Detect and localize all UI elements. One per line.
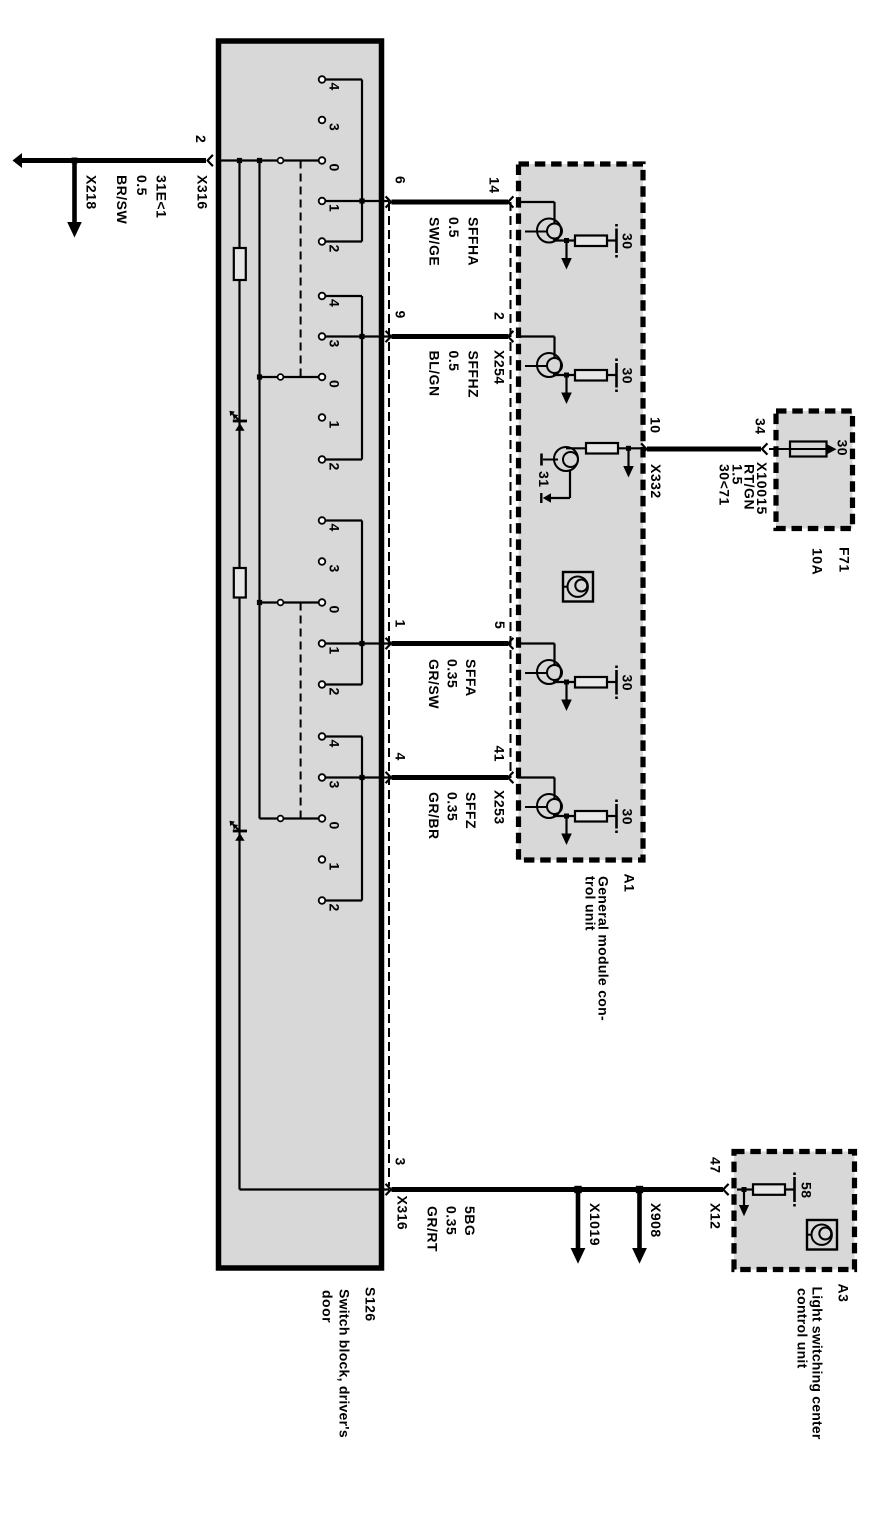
svg-text:BL/GN: BL/GN [427, 351, 443, 397]
svg-text:41: 41 [492, 746, 508, 763]
svg-text:4: 4 [327, 524, 343, 532]
svg-text:30: 30 [620, 675, 636, 692]
svg-text:9: 9 [393, 311, 409, 319]
svg-text:X316: X316 [195, 175, 211, 210]
svg-text:2: 2 [327, 904, 343, 912]
svg-text:2: 2 [327, 245, 343, 253]
svg-text:10A: 10A [810, 548, 826, 575]
svg-text:0.5: 0.5 [446, 217, 462, 238]
svg-text:30: 30 [620, 809, 636, 826]
svg-text:47: 47 [708, 1157, 724, 1174]
svg-text:SFFZ: SFFZ [463, 792, 479, 829]
svg-text:0.35: 0.35 [444, 1206, 460, 1235]
svg-text:2: 2 [327, 688, 343, 696]
svg-text:0.5: 0.5 [446, 351, 462, 372]
svg-text:GR/SW: GR/SW [426, 659, 442, 709]
svg-text:SFFHA: SFFHA [466, 217, 482, 266]
svg-text:GR/BR: GR/BR [426, 792, 442, 840]
svg-text:Light switching center: Light switching center [810, 1287, 826, 1440]
svg-text:X12: X12 [708, 1203, 724, 1229]
svg-text:1: 1 [393, 620, 409, 628]
svg-text:0.35: 0.35 [445, 659, 461, 688]
svg-text:1: 1 [327, 647, 343, 655]
svg-text:X218: X218 [84, 175, 100, 210]
svg-text:door: door [320, 1290, 336, 1323]
svg-text:X332: X332 [648, 464, 664, 499]
svg-text:2: 2 [193, 135, 209, 143]
svg-text:1: 1 [327, 863, 343, 871]
svg-text:X10015: X10015 [754, 462, 770, 515]
svg-text:A3: A3 [836, 1284, 852, 1303]
svg-text:X254: X254 [492, 350, 508, 385]
svg-text:A1: A1 [622, 874, 638, 893]
svg-text:58: 58 [799, 1182, 815, 1199]
svg-text:SFFA: SFFA [463, 659, 479, 697]
svg-text:GR/RT: GR/RT [425, 1206, 441, 1252]
svg-text:10: 10 [648, 417, 664, 434]
svg-text:14: 14 [487, 177, 503, 194]
svg-text:1: 1 [327, 421, 343, 429]
svg-text:3: 3 [327, 565, 343, 573]
svg-text:S126: S126 [363, 1287, 379, 1322]
svg-text:31E<1: 31E<1 [154, 175, 170, 218]
svg-text:X1019: X1019 [587, 1203, 603, 1246]
svg-text:3: 3 [327, 123, 343, 131]
svg-text:0: 0 [327, 606, 343, 614]
svg-text:Switch block, driver's: Switch block, driver's [337, 1289, 353, 1438]
svg-text:5BG: 5BG [462, 1206, 478, 1236]
svg-text:4: 4 [327, 740, 343, 748]
svg-text:SFFHZ: SFFHZ [466, 351, 482, 399]
svg-text:4: 4 [393, 753, 409, 761]
svg-text:1: 1 [327, 204, 343, 212]
svg-text:control unit: control unit [795, 1288, 811, 1369]
svg-text:30: 30 [835, 440, 851, 457]
svg-text:trol unit: trol unit [583, 876, 599, 931]
svg-text:0.5: 0.5 [134, 175, 150, 196]
svg-text:3: 3 [327, 340, 343, 348]
svg-text:F71: F71 [837, 547, 853, 573]
svg-text:X253: X253 [492, 790, 508, 825]
svg-text:31: 31 [536, 471, 552, 488]
svg-text:3: 3 [327, 781, 343, 789]
svg-text:0: 0 [327, 164, 343, 172]
svg-text:0: 0 [327, 380, 343, 388]
svg-text:4: 4 [327, 299, 343, 307]
svg-text:SW/GE: SW/GE [427, 217, 443, 266]
svg-text:30: 30 [620, 233, 636, 250]
svg-text:5: 5 [492, 621, 508, 629]
svg-text:X316: X316 [395, 1196, 411, 1231]
svg-text:3: 3 [393, 1158, 409, 1166]
svg-text:0.35: 0.35 [445, 792, 461, 821]
svg-text:34: 34 [753, 418, 769, 435]
svg-text:6: 6 [393, 176, 409, 184]
svg-text:X908: X908 [648, 1203, 664, 1238]
svg-text:2: 2 [327, 463, 343, 471]
svg-text:BR/SW: BR/SW [114, 175, 130, 224]
svg-text:0: 0 [327, 822, 343, 830]
svg-text:2: 2 [492, 312, 508, 320]
svg-text:4: 4 [327, 83, 343, 91]
svg-text:30: 30 [620, 368, 636, 385]
